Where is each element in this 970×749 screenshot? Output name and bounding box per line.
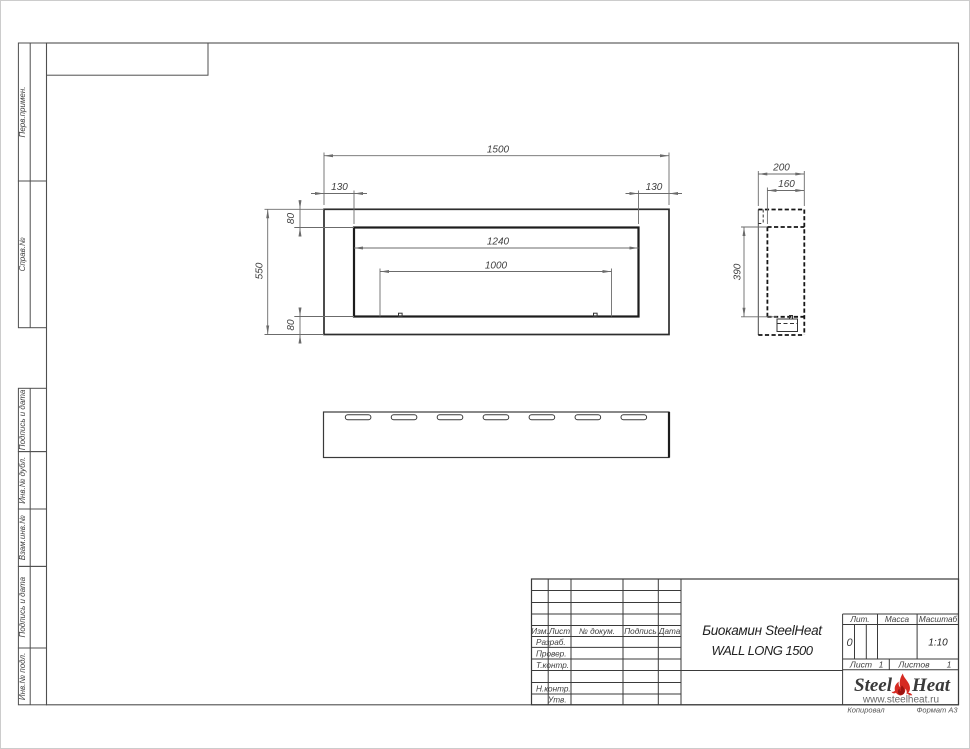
svg-text:550: 550 — [255, 262, 266, 279]
svg-text:Т.контр.: Т.контр. — [536, 661, 569, 670]
svg-text:1240: 1240 — [487, 237, 510, 248]
svg-text:Взам.инв.№: Взам.инв.№ — [18, 515, 27, 560]
svg-text:1: 1 — [879, 660, 884, 670]
svg-text:Провер.: Провер. — [536, 649, 567, 658]
svg-text:1500: 1500 — [487, 144, 510, 155]
svg-text:Инв.№ дубл.: Инв.№ дубл. — [18, 457, 27, 504]
svg-text:Масса: Масса — [885, 615, 910, 624]
svg-text:Подпись и дата: Подпись и дата — [18, 389, 27, 450]
svg-text:Биокамин SteelHeat: Биокамин SteelHeat — [702, 623, 823, 638]
svg-text:Подпись: Подпись — [624, 627, 656, 636]
svg-text:0: 0 — [846, 637, 853, 649]
svg-text:1000: 1000 — [485, 260, 508, 271]
svg-text:Перв.примен.: Перв.примен. — [18, 87, 27, 138]
svg-text:Дата: Дата — [658, 627, 681, 636]
svg-text:Heat: Heat — [911, 675, 951, 696]
svg-text:Разраб.: Разраб. — [536, 638, 566, 647]
svg-text:Изм.: Изм. — [531, 627, 548, 636]
svg-text:Н.контр.: Н.контр. — [536, 685, 571, 694]
svg-text:www.steelheat.ru: www.steelheat.ru — [862, 694, 939, 705]
svg-text:Steel: Steel — [854, 675, 893, 696]
svg-text:Справ.№: Справ.№ — [18, 237, 27, 271]
svg-text:200: 200 — [772, 163, 790, 174]
svg-text:390: 390 — [733, 263, 744, 280]
svg-text:130: 130 — [646, 182, 663, 193]
svg-text:Подпись и дата: Подпись и дата — [18, 576, 27, 637]
svg-text:Инв.№ подл.: Инв.№ подл. — [18, 653, 27, 700]
svg-text:Лист: Лист — [849, 660, 872, 670]
svg-text:80: 80 — [286, 319, 297, 331]
svg-text:WALL LONG 1500: WALL LONG 1500 — [712, 643, 814, 658]
svg-text:1:10: 1:10 — [928, 637, 948, 648]
svg-text:Лист: Лист — [548, 627, 570, 636]
svg-text:Формат А3: Формат А3 — [916, 705, 958, 714]
svg-text:80: 80 — [286, 213, 297, 225]
svg-text:№ докум.: № докум. — [579, 627, 615, 636]
svg-text:Утв.: Утв. — [547, 696, 567, 705]
svg-text:Листов: Листов — [897, 660, 930, 670]
svg-text:160: 160 — [778, 179, 795, 190]
svg-text:Копировал: Копировал — [847, 705, 885, 714]
svg-text:Лит.: Лит. — [849, 615, 869, 624]
svg-text:Масштаб: Масштаб — [919, 615, 958, 624]
svg-text:130: 130 — [331, 182, 348, 193]
svg-text:1: 1 — [947, 660, 952, 670]
